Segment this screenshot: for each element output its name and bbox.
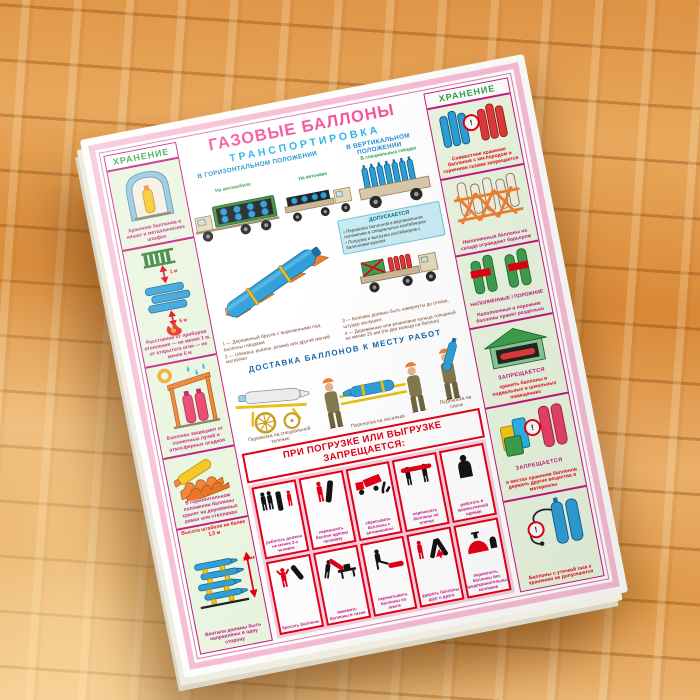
prohibition-caption: переносить баллоны на плечах [406, 507, 447, 529]
vise-pictogram [316, 549, 360, 588]
panel-caption: Баллоны с утечкой газа к хранению не доп… [520, 562, 601, 589]
truck-dump-pictogram [349, 464, 393, 503]
storage-panel-rack: В горизонтальном положении баллоны храня… [163, 446, 248, 531]
barrier-cylinders-icon [447, 168, 529, 229]
wood-table-background: ХРАНЕНИЕ Хранение баллонов в нишах и мет… [0, 0, 700, 700]
tag-empty: ПОРОЖНИЕ [514, 288, 544, 300]
prohibition-caption: зажимать баллоны в тиски [327, 605, 367, 622]
prohibition-caption: переносить баллон одному человеку [312, 525, 353, 547]
panel-caption: Вентили должны быть направлены в одну ст… [199, 621, 269, 651]
leaking-cylinder-icon [509, 490, 592, 557]
storage-panel-canopy: Баллоны защищают от солнечных лучей и ат… [146, 356, 234, 460]
oily-clothes-pictogram [442, 446, 486, 485]
kick-pictogram [363, 539, 407, 578]
safety-poster: ХРАНЕНИЕ Хранение баллонов в нишах и мет… [80, 54, 628, 678]
prohibition-caption: перевозить баллоны без предохранительных… [464, 568, 511, 596]
prohibition-caption: бросать баллоны [282, 619, 320, 631]
prohibition-caption: сбрасывать баллоны с автомашины [359, 516, 400, 538]
no-cap-pictogram [457, 521, 501, 560]
stack-height-label: 1,5 м [242, 555, 255, 563]
shed-icon [476, 317, 557, 374]
prohibition-caption: работать в промасленной одежде [453, 498, 494, 520]
poster-board: ХРАНЕНИЕ Хранение баллонов в нишах и мет… [80, 54, 628, 678]
prohibition-caption: перекатывать баллоны по земле [373, 591, 414, 613]
single-carrier-pictogram [302, 473, 346, 512]
throw-pictogram [269, 558, 313, 597]
niche-cabinet-icon [116, 162, 181, 224]
storage-panel-leak: ! Баллоны с утечкой газа к хранению не д… [504, 487, 604, 592]
prohibition-caption: ударять баллоны друг о друга [421, 587, 461, 604]
shoulder-pair-pictogram [396, 455, 440, 494]
poster-pink-frame: ХРАНЕНИЕ Хранение баллонов в нишах и мет… [88, 62, 620, 670]
radiator-distance-icon [128, 242, 206, 342]
prohibition-caption: работать должно не менее 2-х человек [265, 534, 306, 556]
canopy-sun-rain-icon [153, 359, 223, 435]
storage-panel-niche: Хранение баллонов в нишах и металлически… [108, 159, 194, 253]
crew-pictogram [255, 482, 299, 521]
storage-panel-other-materials: ! ЗАПРЕЩАЕТСЯ в местах хранения баллонов… [486, 394, 586, 503]
strike-pictogram [410, 530, 454, 569]
